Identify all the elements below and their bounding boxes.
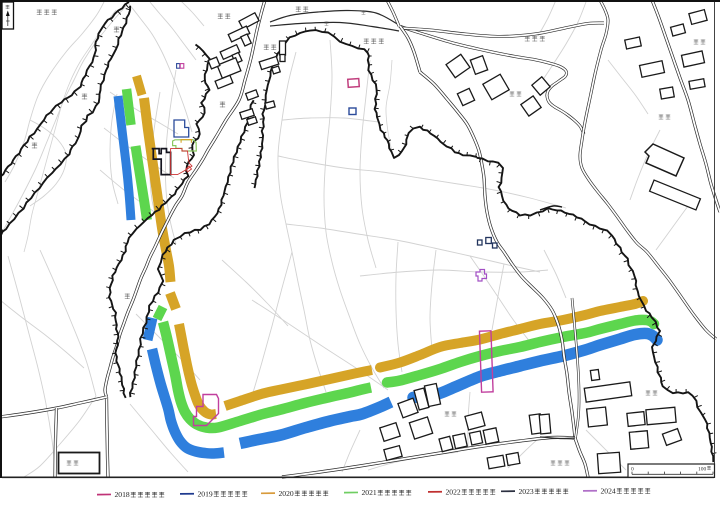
svg-text:2022: 2022 bbox=[446, 488, 461, 497]
svg-text:2024: 2024 bbox=[601, 487, 616, 496]
svg-text:2019: 2019 bbox=[198, 490, 213, 499]
svg-text:100: 100 bbox=[698, 467, 707, 473]
svg-text:2018: 2018 bbox=[115, 490, 130, 499]
svg-text:0: 0 bbox=[631, 467, 634, 473]
svg-text:2020: 2020 bbox=[279, 489, 294, 498]
svg-text:2021: 2021 bbox=[362, 488, 377, 497]
svg-text:2023: 2023 bbox=[519, 487, 534, 496]
